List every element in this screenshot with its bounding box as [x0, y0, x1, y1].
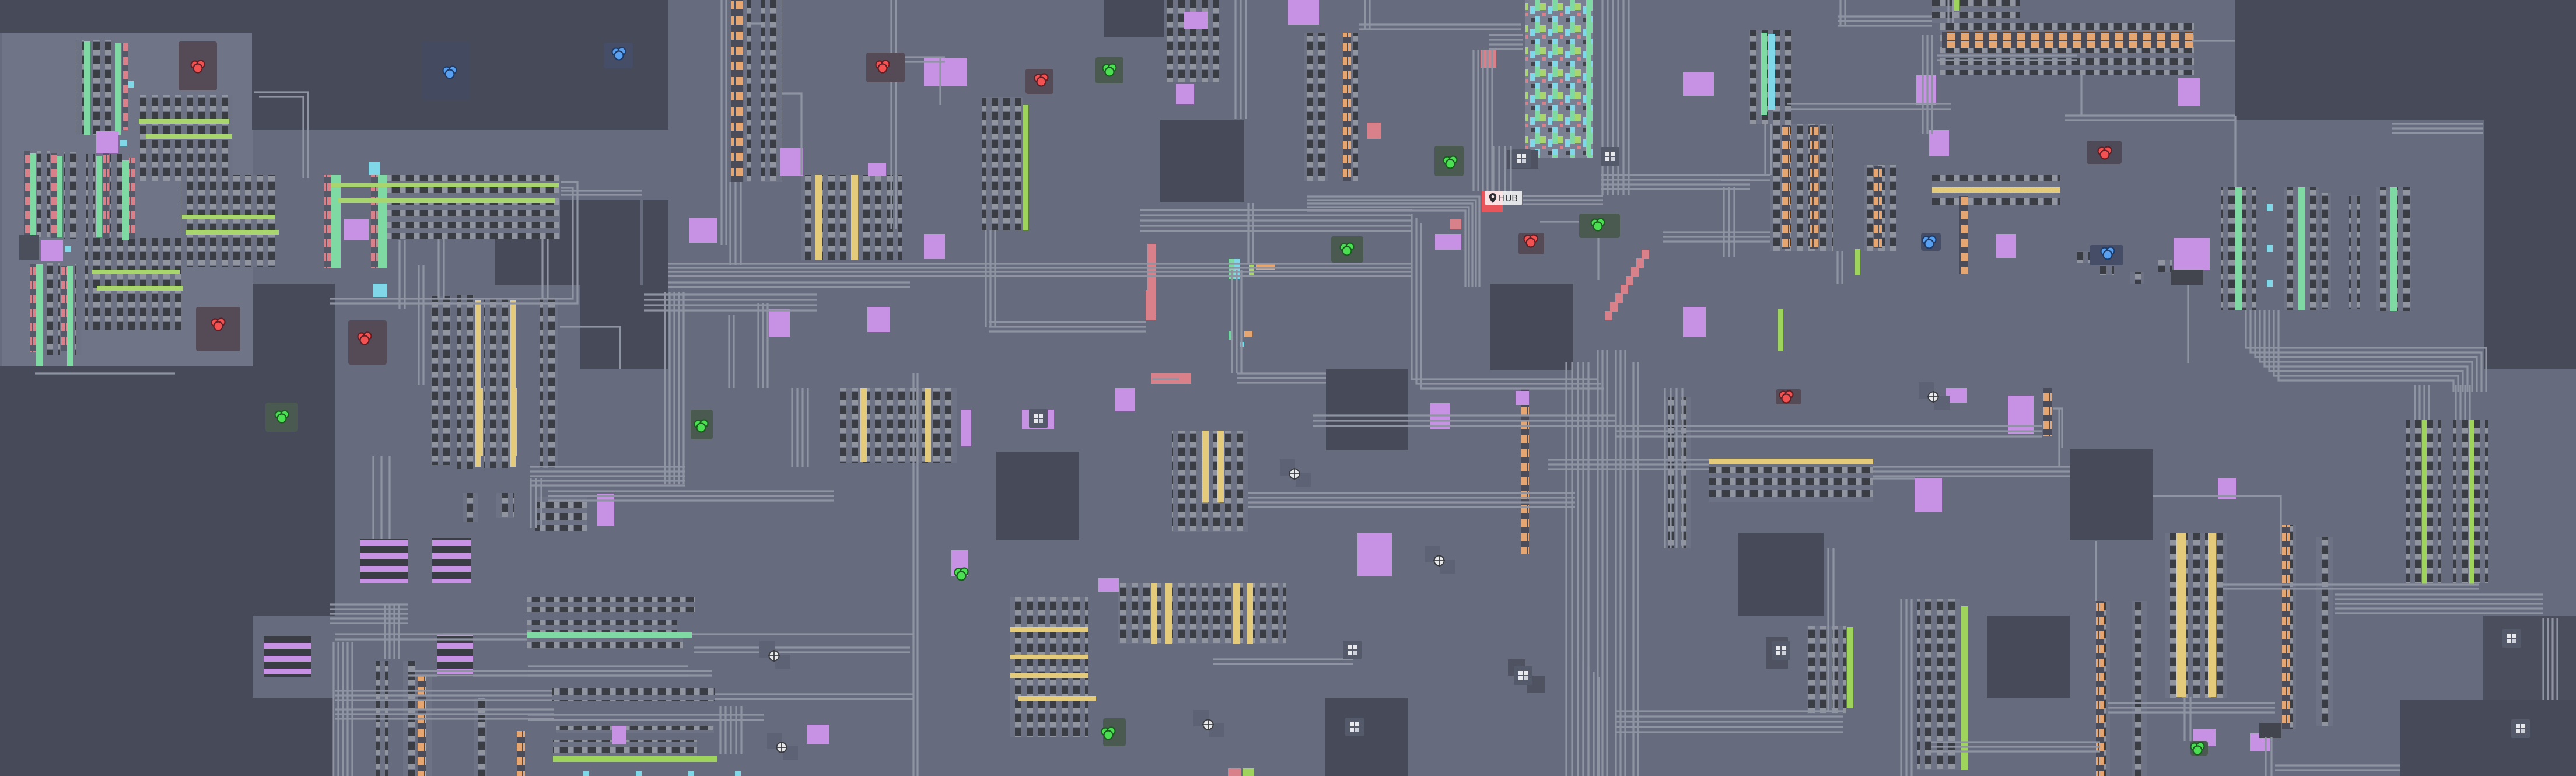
svg-text:HUB: HUB	[1499, 194, 1518, 204]
